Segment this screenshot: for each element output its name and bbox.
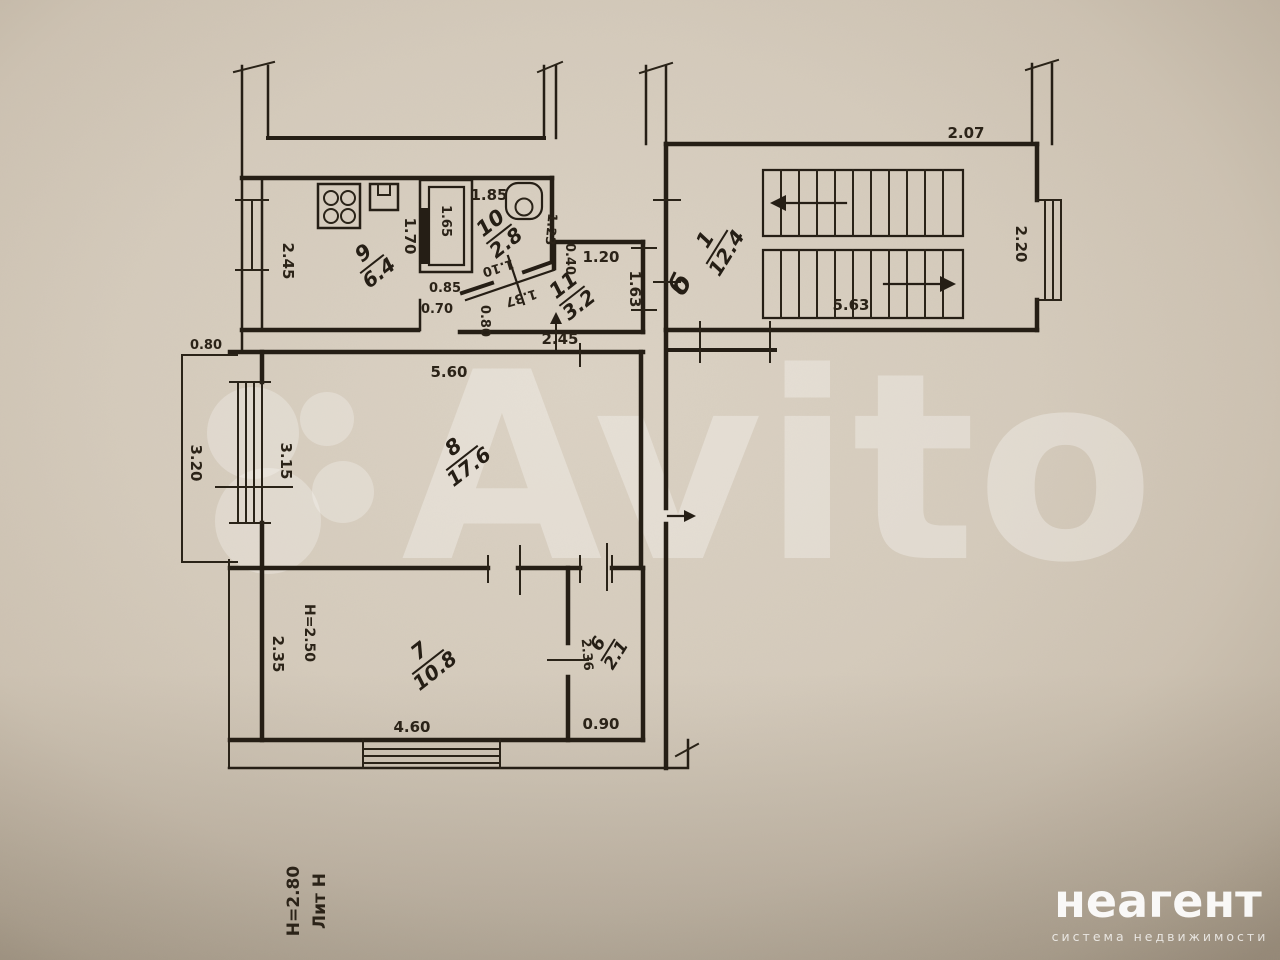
dim-stair-side: 2.20 xyxy=(1012,225,1030,262)
neagent-logo-text: неагент xyxy=(1054,874,1262,928)
dim-room7-width: 4.60 xyxy=(393,718,430,736)
floor-plan-canvas: Avito xyxy=(0,0,1280,960)
dim-kitchen-width: 2.45 xyxy=(279,242,297,279)
avito-watermark-text: Avito xyxy=(401,318,1154,620)
neagent-logo: неагент система недвижимости xyxy=(1052,874,1269,944)
dim-hall-width: 2.45 xyxy=(541,330,578,348)
dim-hall11-width: 1.20 xyxy=(582,248,619,266)
neagent-logo-subtitle: система недвижимости xyxy=(1052,929,1269,944)
liter-label: Лит Н xyxy=(310,873,330,929)
dim-hall6-door: 0.90 xyxy=(582,715,619,733)
dim-kitchen-wall: 1.70 xyxy=(401,217,419,254)
dim-room8-width: 5.60 xyxy=(430,363,467,381)
dim-balcony-width: 0.80 xyxy=(190,338,222,353)
dim-balcony-length: 3.20 xyxy=(187,444,205,481)
avito-logo-circle xyxy=(312,461,374,523)
dim-hall-pass: 0.80 xyxy=(477,305,492,337)
dim-room8-window: 3.15 xyxy=(277,442,295,479)
dim-hall-jog: 0.40 xyxy=(562,243,577,275)
dim-duct-height: 1.65 xyxy=(438,205,453,237)
dim-bath-side: 1.23 xyxy=(542,213,560,246)
dim-kitchen-door: 0.70 xyxy=(421,302,453,317)
dim-duct-width: 0.85 xyxy=(429,281,461,296)
dim-room7-side: 2.35 xyxy=(269,635,287,672)
dim-bath-width: 1.85 xyxy=(470,186,507,204)
avito-logo-circle xyxy=(300,392,354,446)
height-label: Н=2.80 xyxy=(284,866,304,937)
dim-hall11-door: 1.63 xyxy=(626,270,644,307)
avito-logo-circle xyxy=(215,468,321,574)
dim-stair-top: 2.07 xyxy=(947,124,984,142)
floorplan-photo: Avito xyxy=(0,0,1280,960)
dim-hall6-side: 2.36 xyxy=(578,638,596,671)
dim-stair-flight: 5.63 xyxy=(832,296,869,314)
dim-room7-ceiling: Н=2.50 xyxy=(301,604,317,662)
